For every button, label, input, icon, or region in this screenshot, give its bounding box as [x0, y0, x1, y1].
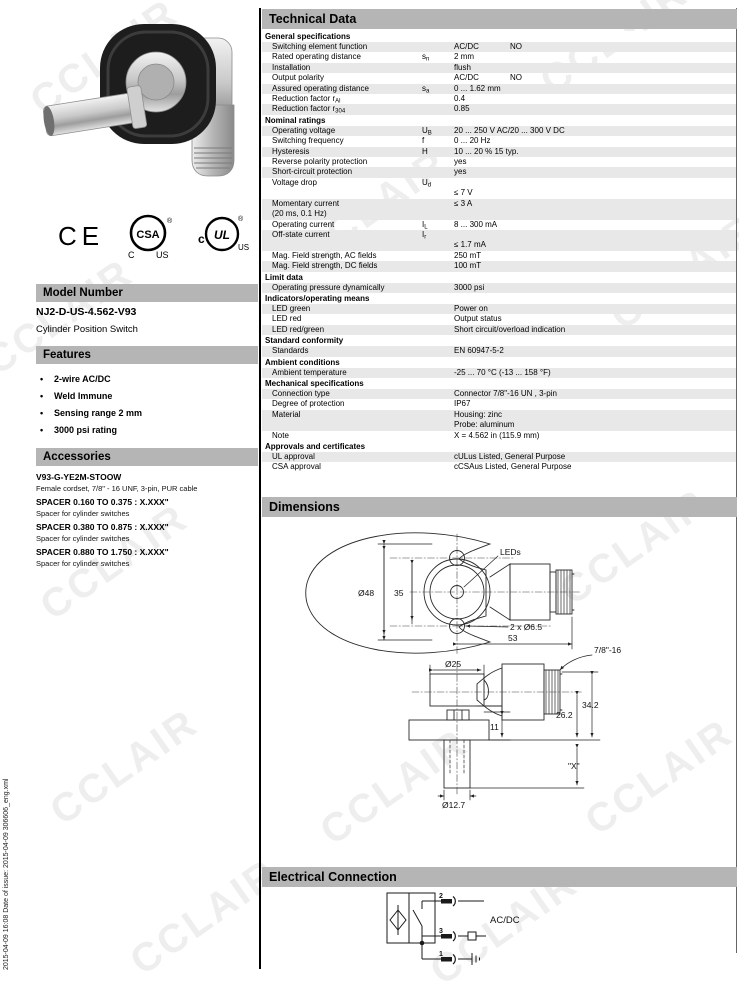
svg-text:®: ® — [238, 215, 244, 223]
table-row: Ambient temperature-25 ... 70 °C (-13 ..… — [262, 368, 736, 378]
spec-symbol — [422, 283, 454, 293]
technical-data-header: Technical Data — [262, 9, 737, 29]
spec-value: ≤ 3 A — [454, 199, 736, 220]
dim-53: 53 — [508, 633, 518, 643]
feature-item: •3000 psi rating — [40, 422, 255, 439]
spec-symbol: Ud — [422, 178, 454, 199]
feature-label: 2-wire AC/DC — [54, 371, 111, 388]
spec-value-line: 0 ... 1.62 mm — [454, 84, 736, 94]
section-title: Limit data — [262, 272, 736, 283]
svg-text:C: C — [128, 250, 135, 260]
spec-value-line: Housing: zinc — [454, 410, 736, 420]
column-divider — [259, 8, 261, 969]
spec-value-line: 3000 psi — [454, 283, 736, 293]
accessories-list: V93-G-YE2M-STOOWFemale cordset, 7/8" - 1… — [36, 469, 256, 569]
spec-value-line: yes — [454, 167, 736, 177]
table-row: Short-circuit protectionyes — [262, 167, 736, 177]
accessory-description: Female cordset, 7/8" - 16 UNF, 3-pin, PU… — [36, 483, 256, 494]
table-row: Assured operating distancesa0 ... 1.62 m… — [262, 84, 736, 94]
table-row: Installationflush — [262, 63, 736, 73]
spec-label: Voltage drop — [262, 178, 422, 199]
spec-value: cULus Listed, General Purpose — [454, 452, 736, 462]
table-row: LED red/greenShort circuit/overload indi… — [262, 325, 736, 335]
spec-value: ≤ 7 V — [454, 178, 736, 199]
svg-text:UL: UL — [214, 228, 230, 242]
spec-symbol — [422, 452, 454, 462]
spec-label: Degree of protection — [262, 399, 422, 409]
svg-text:US: US — [238, 243, 249, 252]
spec-value: 2 mm — [454, 52, 736, 62]
spec-value-line: EN 60947-5-2 — [454, 346, 736, 356]
spec-symbol — [422, 346, 454, 356]
spec-label: Output polarity — [262, 73, 422, 83]
spec-value: yes — [454, 167, 736, 177]
csa-logo: CSA ® C US — [128, 216, 173, 260]
spec-value-line: AC/DCNO — [454, 42, 736, 52]
spec-value-line: IP67 — [454, 399, 736, 409]
spec-value: 3000 psi — [454, 283, 736, 293]
spec-symbol — [422, 42, 454, 52]
spec-value-line: ≤ 3 A — [454, 199, 736, 209]
spec-value-line: 0 ... 20 Hz — [454, 136, 736, 146]
accessory-name: V93-G-YE2M-STOOW — [36, 471, 256, 483]
spec-label: Note — [262, 431, 422, 441]
spec-value-line: cULus Listed, General Purpose — [454, 452, 736, 462]
spec-value: Connector 7/8"-16 UN , 3-pin — [454, 389, 736, 399]
spec-symbol — [422, 325, 454, 335]
ul-logo: c UL US ® — [198, 215, 249, 252]
feature-label: Weld Immune — [54, 388, 112, 405]
accessory-name: SPACER 0.880 TO 1.750 : X.XXX" — [36, 546, 256, 558]
spec-value: Short circuit/overload indication — [454, 325, 736, 335]
accessory-name: SPACER 0.380 TO 0.875 : X.XXX" — [36, 521, 256, 533]
spec-symbol — [422, 431, 454, 441]
spec-label: Switching element function — [262, 42, 422, 52]
spec-symbol: sa — [422, 84, 454, 94]
table-row: Reduction factor r3040.85 — [262, 104, 736, 114]
table-row: Mag. Field strength, DC fields100 mT — [262, 261, 736, 271]
spec-label: CSA approval — [262, 462, 422, 472]
feature-label: 3000 psi rating — [54, 422, 117, 439]
spec-value: AC/DCNO — [454, 42, 736, 52]
spec-value: EN 60947-5-2 — [454, 346, 736, 356]
spec-value: Housing: zincProbe: aluminum — [454, 410, 736, 431]
spec-value-line — [454, 178, 736, 188]
table-row: Degree of protectionIP67 — [262, 399, 736, 409]
spec-value-line: Short circuit/overload indication — [454, 325, 736, 335]
table-row: Reverse polarity protectionyes — [262, 157, 736, 167]
dim-holes: 2 x Ø6.5 — [510, 622, 542, 632]
feature-item: •2-wire AC/DC — [40, 371, 255, 388]
spec-value: flush — [454, 63, 736, 73]
spec-value: 100 mT — [454, 261, 736, 271]
accessory-description: Spacer for cylinder switches — [36, 533, 256, 544]
spec-value-line: 8 ... 300 mA — [454, 220, 736, 230]
pin-2-label: 2 — [439, 893, 443, 900]
table-row: Off-state currentIr ≤ 1.7 mA — [262, 230, 736, 251]
spec-label: Assured operating distance — [262, 84, 422, 94]
spec-label: Switching frequency — [262, 136, 422, 146]
spec-value-secondary: NO — [510, 73, 522, 83]
bullet-icon: • — [40, 422, 54, 439]
svg-text:US: US — [156, 250, 169, 260]
table-row: CSA approvalcCSAus Listed, General Purpo… — [262, 462, 736, 472]
spec-value-line: Probe: aluminum — [454, 420, 736, 430]
spec-value-line: 2 mm — [454, 52, 736, 62]
spec-label-line2: (20 ms, 0.1 Hz) — [272, 209, 422, 219]
spec-label: Standards — [262, 346, 422, 356]
spec-value-line: 0.4 — [454, 94, 736, 104]
accessory-description: Spacer for cylinder switches — [36, 508, 256, 519]
spec-value: IP67 — [454, 399, 736, 409]
accessories-header: Accessories — [36, 448, 258, 466]
spec-value: 0 ... 20 Hz — [454, 136, 736, 146]
spec-label: Ambient temperature — [262, 368, 422, 378]
svg-text:CSA: CSA — [136, 229, 159, 241]
supply-label: AC/DC — [490, 915, 520, 926]
section-title: Mechanical specifications — [262, 378, 736, 389]
dim-x: "X" — [568, 761, 580, 771]
spec-value-line: flush — [454, 63, 736, 73]
spec-value: 0 ... 1.62 mm — [454, 84, 736, 94]
table-row: Connection typeConnector 7/8"-16 UN , 3-… — [262, 389, 736, 399]
spec-label: UL approval — [262, 452, 422, 462]
spec-value: 8 ... 300 mA — [454, 220, 736, 230]
certification-logos: CE CSA ® C US c UL US ® — [50, 205, 250, 267]
spec-value: 250 mT — [454, 251, 736, 261]
spec-value-line: cCSAus Listed, General Purpose — [454, 462, 736, 472]
section-title: Ambient conditions — [262, 357, 736, 368]
spec-symbol — [422, 104, 454, 114]
side-flange — [409, 720, 489, 740]
section-title: Standard conformity — [262, 335, 736, 346]
spec-value-line: 20 ... 250 V AC/20 ... 300 V DC — [454, 126, 736, 136]
spec-value: cCSAus Listed, General Purpose — [454, 462, 736, 472]
spec-value-line: 250 mT — [454, 251, 736, 261]
spec-symbol: sn — [422, 52, 454, 62]
spec-symbol — [422, 304, 454, 314]
table-row: Operating voltageUB20 ... 250 V AC/20 ..… — [262, 126, 736, 136]
document-issue-info: 2015-04-09 16:08 Date of issue: 2015-04-… — [3, 698, 13, 970]
dim-35: 35 — [394, 588, 404, 598]
spec-value-line: 10 ... 20 % 15 typ. — [454, 147, 736, 157]
spec-value: Output status — [454, 314, 736, 324]
dim-thread: 7/8"-16 — [594, 645, 621, 655]
spec-label: Hysteresis — [262, 147, 422, 157]
pin-1-label: 1 — [439, 951, 443, 958]
accessory-name: SPACER 0.160 TO 0.375 : X.XXX" — [36, 496, 256, 508]
accessory-description: Spacer for cylinder switches — [36, 558, 256, 569]
spec-value: AC/DCNO — [454, 73, 736, 83]
spec-value-line: ≤ 1.7 mA — [454, 240, 736, 250]
spec-symbol — [422, 261, 454, 271]
spec-value-line — [454, 230, 736, 240]
spec-value-secondary: NO — [510, 42, 522, 52]
spec-value: -25 ... 70 °C (-13 ... 158 °F) — [454, 368, 736, 378]
table-row: Reduction factor rAl0.4 — [262, 94, 736, 104]
svg-text:c: c — [198, 232, 205, 246]
table-row: LED redOutput status — [262, 314, 736, 324]
table-row: Operating pressure dynamically3000 psi — [262, 283, 736, 293]
feature-label: Sensing range 2 mm — [54, 405, 142, 422]
ce-logo: CE — [58, 221, 104, 251]
table-row: NoteX = 4.562 in (115.9 mm) — [262, 431, 736, 441]
spec-label: Rated operating distance — [262, 52, 422, 62]
table-row: Mag. Field strength, AC fields250 mT — [262, 251, 736, 261]
pin-3-label: 3 — [439, 928, 443, 935]
table-row: UL approvalcULus Listed, General Purpose — [262, 452, 736, 462]
svg-text:®: ® — [167, 217, 173, 225]
dimensions-drawing: Ø48 35 LEDs 2 x Ø6.5 53 7/8"-16 — [262, 522, 738, 862]
spec-label: Reduction factor rAl — [262, 94, 422, 104]
spec-value: Power on — [454, 304, 736, 314]
section-title: Indicators/operating means — [262, 293, 736, 304]
model-number-header: Model Number — [36, 284, 258, 302]
dim-262: 26.2 — [556, 710, 573, 720]
spec-symbol — [422, 314, 454, 324]
dim-127: Ø12.7 — [442, 800, 465, 810]
spec-value-line: Connector 7/8"-16 UN , 3-pin — [454, 389, 736, 399]
spec-label: Operating current — [262, 220, 422, 230]
spec-label: Material — [262, 410, 422, 431]
table-row: StandardsEN 60947-5-2 — [262, 346, 736, 356]
table-row: Output polarityAC/DCNO — [262, 73, 736, 83]
spec-symbol: f — [422, 136, 454, 146]
dim-342: 34.2 — [582, 700, 599, 710]
table-row: Switching element functionAC/DCNO — [262, 42, 736, 52]
spec-label: Short-circuit protection — [262, 167, 422, 177]
spec-label: Operating voltage — [262, 126, 422, 136]
spec-label: LED green — [262, 304, 422, 314]
spec-value-line: AC/DCNO — [454, 73, 736, 83]
spec-label: Off-state current — [262, 230, 422, 251]
spec-value-line: 0.85 — [454, 104, 736, 114]
spec-label: Mag. Field strength, DC fields — [262, 261, 422, 271]
spec-value-line: X = 4.562 in (115.9 mm) — [454, 431, 736, 441]
spec-label: Connection type — [262, 389, 422, 399]
feature-item: •Sensing range 2 mm — [40, 405, 255, 422]
spec-label: Reduction factor r304 — [262, 104, 422, 114]
spec-symbol — [422, 94, 454, 104]
bullet-icon: • — [40, 371, 54, 388]
spec-symbol — [422, 199, 454, 220]
spec-value: X = 4.562 in (115.9 mm) — [454, 431, 736, 441]
spec-value: 0.4 — [454, 94, 736, 104]
features-list: •2-wire AC/DC•Weld Immune•Sensing range … — [40, 371, 255, 439]
spec-symbol: H — [422, 147, 454, 157]
table-row: HysteresisH10 ... 20 % 15 typ. — [262, 147, 736, 157]
spec-value-line: ≤ 7 V — [454, 188, 736, 198]
bullet-icon: • — [40, 405, 54, 422]
table-row: Switching frequencyf0 ... 20 Hz — [262, 136, 736, 146]
spec-label: LED red — [262, 314, 422, 324]
spec-symbol — [422, 462, 454, 472]
dim-25: Ø25 — [445, 659, 461, 669]
features-header: Features — [36, 346, 258, 364]
model-description: Cylinder Position Switch — [36, 324, 138, 335]
dimensions-header: Dimensions — [262, 497, 737, 517]
spec-label: Reverse polarity protection — [262, 157, 422, 167]
spec-value-line: Power on — [454, 304, 736, 314]
spec-value: yes — [454, 157, 736, 167]
feature-item: •Weld Immune — [40, 388, 255, 405]
table-row: MaterialHousing: zincProbe: aluminum — [262, 410, 736, 431]
watermark: CCLAIR — [42, 701, 206, 835]
section-title: Approvals and certificates — [262, 441, 736, 452]
spec-symbol: Ir — [422, 230, 454, 251]
electrical-connection-header: Electrical Connection — [262, 867, 737, 887]
spec-symbol — [422, 167, 454, 177]
spec-symbol — [422, 389, 454, 399]
section-title: General specifications — [262, 31, 736, 42]
dim-leds: LEDs — [500, 547, 521, 557]
spec-symbol — [422, 399, 454, 409]
spec-value-primary: AC/DC — [454, 42, 510, 52]
spec-value-line: yes — [454, 157, 736, 167]
spec-label: Momentary current(20 ms, 0.1 Hz) — [262, 199, 422, 220]
dim-48: Ø48 — [358, 588, 374, 598]
spec-symbol: UB — [422, 126, 454, 136]
table-row: Voltage dropUd ≤ 7 V — [262, 178, 736, 199]
spec-value: ≤ 1.7 mA — [454, 230, 736, 251]
spec-symbol: IL — [422, 220, 454, 230]
section-title: Nominal ratings — [262, 115, 736, 126]
spec-value-line: -25 ... 70 °C (-13 ... 158 °F) — [454, 368, 736, 378]
spec-symbol — [422, 251, 454, 261]
table-row: Operating currentIL8 ... 300 mA — [262, 220, 736, 230]
table-row: LED greenPower on — [262, 304, 736, 314]
spec-symbol — [422, 63, 454, 73]
bullet-icon: • — [40, 388, 54, 405]
model-number: NJ2-D-US-4.562-V93 — [36, 306, 136, 318]
spec-value-primary: AC/DC — [454, 73, 510, 83]
spec-label: Operating pressure dynamically — [262, 283, 422, 293]
svg-text:CE: CE — [58, 221, 104, 251]
technical-data-table: General specificationsSwitching element … — [262, 31, 736, 473]
spec-label: LED red/green — [262, 325, 422, 335]
table-row: Momentary current(20 ms, 0.1 Hz)≤ 3 A — [262, 199, 736, 220]
spec-value-line: Output status — [454, 314, 736, 324]
dim-11: 11 — [490, 722, 499, 732]
spec-symbol — [422, 368, 454, 378]
spec-symbol — [422, 73, 454, 83]
spec-value-line: 100 mT — [454, 261, 736, 271]
spec-value: 10 ... 20 % 15 typ. — [454, 147, 736, 157]
spec-value: 0.85 — [454, 104, 736, 114]
electrical-connection-diagram: 2 3 1 AC/DC — [262, 890, 738, 971]
spec-value: 20 ... 250 V AC/20 ... 300 V DC — [454, 126, 736, 136]
spec-symbol — [422, 410, 454, 431]
table-row: Rated operating distancesn2 mm — [262, 52, 736, 62]
pin-connector-symbols — [441, 897, 455, 965]
product-photo — [42, 10, 254, 198]
spec-label: Installation — [262, 63, 422, 73]
spec-label: Mag. Field strength, AC fields — [262, 251, 422, 261]
spec-symbol — [422, 157, 454, 167]
